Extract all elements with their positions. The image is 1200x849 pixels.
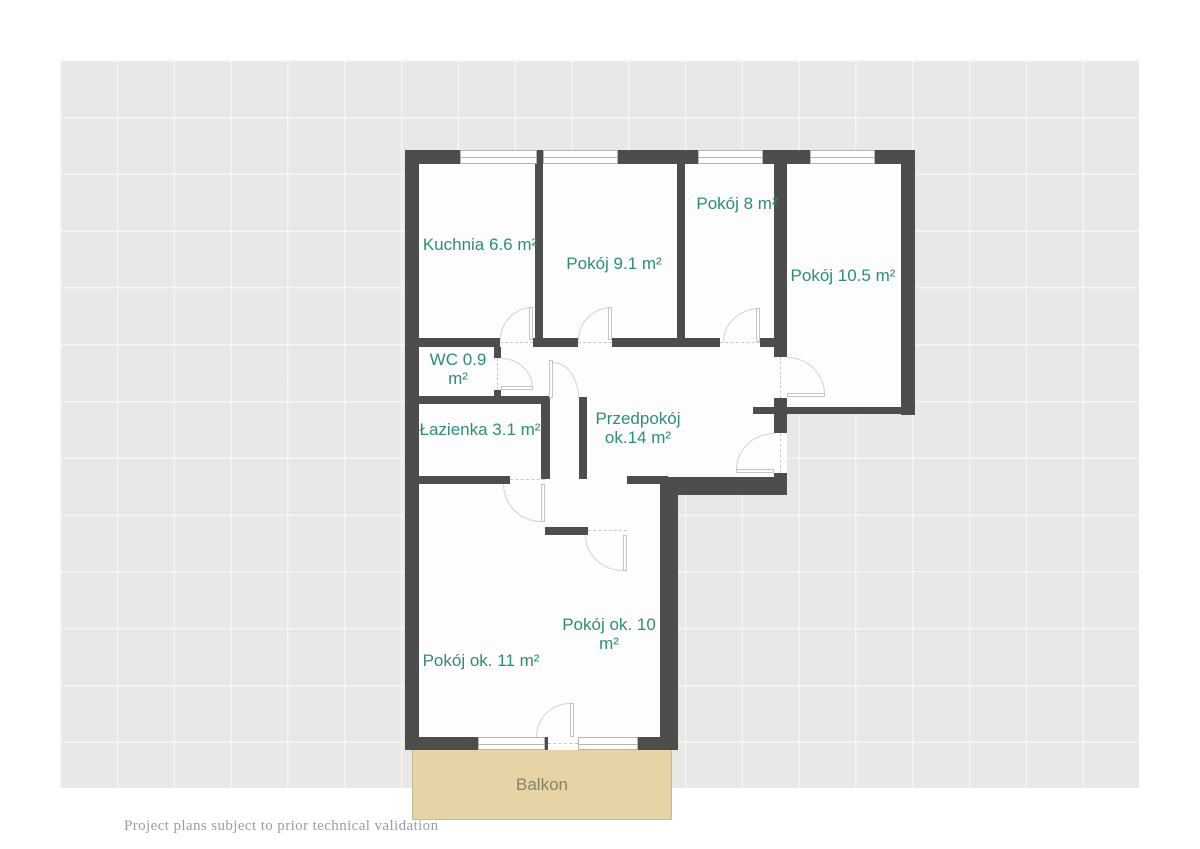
window-pokoj10 (578, 737, 638, 750)
door-threshold-wc (497, 358, 498, 390)
plan-canvas: Balkon (60, 60, 1139, 788)
wall-notch (627, 476, 668, 484)
door-threshold-pokoj8 (720, 342, 760, 343)
room-label-lazienka: Łazienka 3.1 m² (418, 421, 542, 440)
wall-lower-right (660, 477, 678, 750)
floor-plan-page: Balkon (0, 0, 1200, 849)
room-label-kuchnia: Kuchnia 6.6 m² (420, 236, 540, 255)
door-leaf-pokoj8 (756, 308, 760, 342)
door-leaf-balcony (570, 703, 574, 737)
window-pokoj105 (810, 150, 875, 164)
door-threshold-entrance (780, 433, 781, 473)
wall-lazienka-right (541, 404, 550, 479)
door-threshold-kuchnia (500, 342, 533, 343)
room-label-przedpokoj: Przedpokój ok.14 m² (590, 410, 686, 447)
door-threshold-pokoj10 (588, 530, 627, 531)
wall-right (901, 150, 915, 415)
door-leaf-kuchnia (529, 307, 533, 340)
window-pokoj8 (698, 150, 763, 164)
wall-left (405, 150, 419, 750)
door-threshold-pokoj91 (578, 342, 612, 343)
door-leaf-pokoj10 (623, 535, 627, 571)
window-kuchnia (460, 150, 537, 164)
balcony-label: Balkon (516, 775, 568, 795)
door-leaf-pokoj105 (787, 393, 825, 397)
wall-entry-bottom (678, 477, 787, 495)
door-leaf-pokoj91 (608, 307, 612, 340)
door-threshold-pokoj11 (510, 479, 545, 480)
balcony-area: Balkon (412, 749, 672, 820)
door-leaf-wc (501, 386, 533, 390)
wall-lazienka-bottom (405, 476, 510, 484)
wall-entry-vert-mid (774, 398, 787, 433)
disclaimer-text: Project plans subject to prior technical… (124, 818, 438, 835)
wall-pokoj10-top (545, 527, 588, 535)
wall-hall-stub (579, 397, 587, 479)
wall-wc-bottom (405, 396, 550, 404)
room-label-pokoj-11: Pokój ok. 11 m² (418, 652, 544, 671)
door-leaf-entrance (736, 469, 774, 473)
room-label-pokoj-9-1: Pokój 9.1 m² (558, 255, 670, 274)
door-leaf-pokoj11 (541, 484, 545, 522)
door-threshold-pokoj105 (780, 357, 781, 398)
wall-pokoj91-pokoj8 (677, 164, 685, 347)
wall-entry-vert-bot (774, 473, 787, 483)
door-threshold-balcony (548, 743, 578, 744)
room-label-wc: WC 0.9 m² (425, 351, 491, 388)
window-pokoj91 (543, 150, 618, 164)
room-label-pokoj-10-5: Pokój 10.5 m² (786, 267, 900, 286)
room-label-pokoj-8: Pokój 8 m² (692, 195, 782, 214)
wall-pokoj8-pokoj105 (774, 164, 787, 357)
room-label-pokoj-10: Pokój ok. 10 m² (554, 616, 664, 653)
wall-kuchnia-pokoj91 (535, 164, 543, 347)
window-pokoj11 (478, 737, 545, 750)
